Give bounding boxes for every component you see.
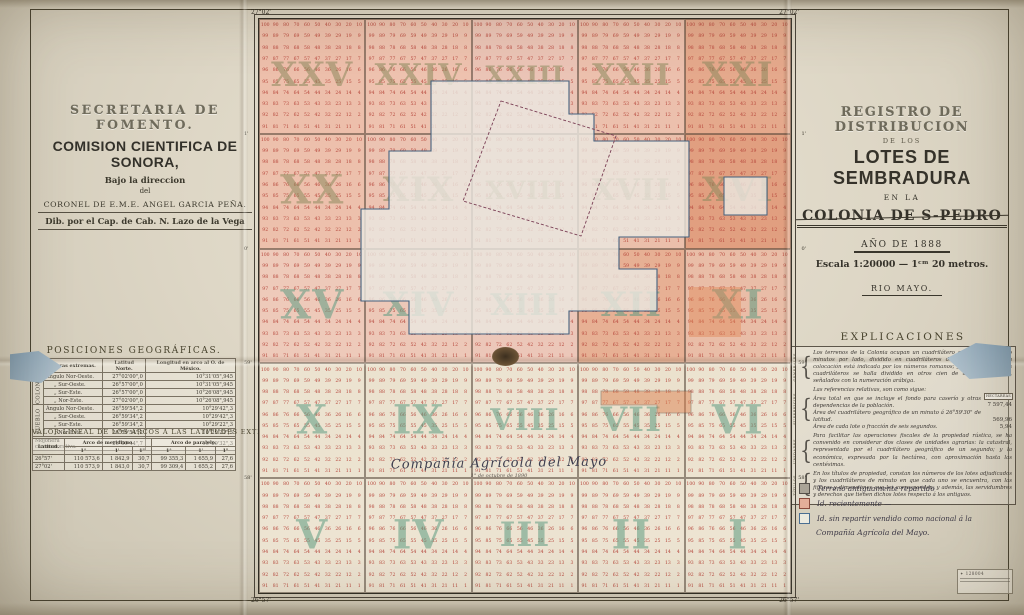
lot-number: 24 — [439, 202, 449, 213]
lot-number: 21 — [759, 466, 769, 477]
valor-sub-deg-p: 1° — [152, 447, 186, 455]
lot-number: 57 — [408, 513, 418, 524]
lot-number: 99 — [579, 376, 589, 387]
lot-number: 48 — [312, 502, 322, 513]
lot-number: 35 — [748, 76, 758, 87]
lot-number: 10 — [460, 364, 470, 375]
lot-number: 39 — [535, 31, 545, 42]
lot-number: 86 — [270, 180, 280, 191]
mojonera-name: „ Sur-Este. — [44, 389, 103, 397]
lot-number: 35 — [535, 76, 545, 87]
lot-number: 95 — [686, 421, 696, 432]
lot-number: 48 — [525, 157, 535, 168]
lot-number: 81 — [270, 466, 280, 477]
lot-number: 52 — [727, 455, 737, 466]
lot-number: 40 — [748, 20, 758, 31]
lot-number: 13 — [450, 99, 460, 110]
lot-number: 26 — [439, 524, 449, 535]
lot-number: 69 — [291, 31, 301, 42]
lot-number: 54 — [621, 432, 631, 443]
lot-number: 59 — [408, 31, 418, 42]
lot-number: 11 — [450, 122, 460, 133]
lot-number: 52 — [408, 225, 418, 236]
lot-number: 65 — [291, 536, 301, 547]
lot-number: 33 — [642, 558, 652, 569]
lot-number: 30 — [439, 20, 449, 31]
lot-number: 77 — [494, 169, 504, 180]
lot-number: 14 — [663, 202, 673, 213]
lot-number: 17 — [450, 283, 460, 294]
lot-number: 29 — [439, 490, 449, 501]
lot-number: 76 — [387, 410, 397, 421]
lot-number: 82 — [270, 340, 280, 351]
lot-number: 91 — [260, 122, 270, 133]
lot-number: 100 — [260, 479, 270, 490]
lot-number: 78 — [387, 157, 397, 168]
lot-number: 27 — [759, 283, 769, 294]
stamp-text-line — [960, 581, 1010, 583]
lot-number: 89 — [483, 146, 493, 157]
lot-number: 80 — [387, 20, 397, 31]
lot-number: 34 — [642, 432, 652, 443]
lot-number: 5 — [780, 306, 790, 317]
lot-number: 92 — [579, 569, 589, 580]
lot-number: 42 — [738, 455, 748, 466]
lot-number: 91 — [473, 351, 483, 362]
lot-number: 27 — [652, 513, 662, 524]
lot-number: 30 — [759, 479, 769, 490]
lot-number: 71 — [494, 122, 504, 133]
lot-number: 41 — [738, 351, 748, 362]
lot-number: 36 — [642, 180, 652, 191]
lot-number: 5 — [780, 76, 790, 87]
lot-number: 39 — [535, 146, 545, 157]
lot-number: 75 — [706, 76, 716, 87]
lot-number: 58 — [727, 157, 737, 168]
lot-number: 70 — [717, 364, 727, 375]
lot-number: 55 — [727, 536, 737, 547]
lot-number: 29 — [652, 146, 662, 157]
lot-number: 57 — [302, 283, 312, 294]
area-item-value: 569,96 — [984, 417, 1012, 424]
lot-number: 65 — [611, 191, 621, 202]
lot-number: 78 — [387, 502, 397, 513]
lot-number: 93 — [686, 214, 696, 225]
lot-number: 57 — [621, 513, 631, 524]
lot-number: 8 — [567, 387, 577, 398]
lot-number: 35 — [748, 306, 758, 317]
lot-number: 66 — [504, 410, 514, 421]
lot-number: 98 — [260, 387, 270, 398]
lot-number: 18 — [556, 272, 566, 283]
lot-number: 35 — [323, 306, 333, 317]
lot-number: 7 — [780, 398, 790, 409]
lot-number: 32 — [429, 569, 439, 580]
lot-number: 85 — [377, 536, 387, 547]
lot-number: 68 — [504, 272, 514, 283]
lot-number: 77 — [281, 169, 291, 180]
lot-number: 6 — [673, 524, 683, 535]
lot-number: 32 — [323, 110, 333, 121]
lot-number: 64 — [611, 88, 621, 99]
lot-number: 13 — [344, 329, 354, 340]
lot-number: 97 — [686, 54, 696, 65]
lot-number: 89 — [270, 146, 280, 157]
lot-number: 99 — [366, 376, 376, 387]
lot-number: 35 — [323, 191, 333, 202]
lot-number: 11 — [556, 122, 566, 133]
lot-number: 93 — [579, 443, 589, 454]
lot-number: 51 — [727, 122, 737, 133]
lot-number: 78 — [706, 43, 716, 54]
lot-number: 46 — [312, 65, 322, 76]
lot-number: 60 — [515, 250, 525, 261]
lot-number: 26 — [652, 65, 662, 76]
lot-number: 2 — [460, 340, 470, 351]
lot-number: 31 — [429, 122, 439, 133]
lot-number: 96 — [579, 180, 589, 191]
lot-number: 15 — [769, 421, 779, 432]
lot-number: 77 — [494, 398, 504, 409]
lot-number: 22 — [333, 340, 343, 351]
lot-number: 87 — [483, 398, 493, 409]
lot-number: 39 — [429, 376, 439, 387]
lot-number: 10 — [780, 479, 790, 490]
lot-number: 59 — [515, 146, 525, 157]
lot-number: 82 — [377, 569, 387, 580]
lot-number: 74 — [706, 432, 716, 443]
lot-number: 80 — [281, 479, 291, 490]
lot-number: 25 — [759, 536, 769, 547]
lot-number: 96 — [366, 180, 376, 191]
lot-number: 37 — [535, 398, 545, 409]
lot-number: 78 — [600, 157, 610, 168]
lot-number: 97 — [366, 169, 376, 180]
lot-number: 14 — [450, 547, 460, 558]
lot-number: 22 — [546, 110, 556, 121]
lot-number: 91 — [686, 122, 696, 133]
lot-number: 69 — [717, 376, 727, 387]
lot-number: 33 — [535, 99, 545, 110]
mojonera-name: Ángulo Nor-Oeste. — [44, 405, 103, 413]
lot-number: 82 — [270, 455, 280, 466]
lot-number: 3 — [673, 443, 683, 454]
lot-number: 50 — [312, 135, 322, 146]
lot-number: 31 — [323, 466, 333, 477]
lot-number: 3 — [354, 443, 364, 454]
lot-number: 69 — [611, 261, 621, 272]
lot-number: 81 — [696, 351, 706, 362]
lot-number: 76 — [600, 180, 610, 191]
lot-number: 51 — [408, 122, 418, 133]
lot-number: 1 — [780, 351, 790, 362]
lot-number: 19 — [769, 261, 779, 272]
lot-number: 79 — [600, 261, 610, 272]
lot-number: 91 — [366, 236, 376, 247]
lot-number: 22 — [652, 340, 662, 351]
lot-number: 66 — [398, 410, 408, 421]
lot-number: 3 — [567, 558, 577, 569]
latitude-value: 26°59'34",2 — [103, 413, 146, 421]
lot-number: 58 — [408, 502, 418, 513]
lot-number: 51 — [408, 351, 418, 362]
lot-number: 4 — [460, 88, 470, 99]
lot-number: 97 — [260, 283, 270, 294]
lot-number: 95 — [260, 536, 270, 547]
lot-number: 11 — [769, 236, 779, 247]
lot-number: 80 — [706, 479, 716, 490]
lot-number: 16 — [769, 410, 779, 421]
lot-number: 33 — [323, 214, 333, 225]
arc-value: 27,6 — [216, 463, 236, 471]
lot-number: 19 — [450, 31, 460, 42]
lot-number: 62 — [504, 110, 514, 121]
lot-number: 38 — [642, 43, 652, 54]
lot-number: 97 — [579, 398, 589, 409]
lot-number: 11 — [769, 466, 779, 477]
lot-number: 98 — [686, 157, 696, 168]
lot-number: 88 — [377, 157, 387, 168]
lot-number: 18 — [769, 43, 779, 54]
lot-number: 83 — [483, 214, 493, 225]
corner-coordinate-bottom-right: 26°57' — [779, 597, 799, 604]
lot-number: 68 — [504, 43, 514, 54]
lot-number: 81 — [270, 236, 280, 247]
lot-number: 20 — [769, 479, 779, 490]
lot-number: 25 — [652, 536, 662, 547]
lot-number: 21 — [333, 351, 343, 362]
lot-number: 63 — [398, 99, 408, 110]
lot-number: 5 — [460, 306, 470, 317]
posiciones-col-longitud: Longitud en arco al O. de México. — [145, 359, 235, 373]
register-subtitle-delos: DE LOS — [788, 137, 1016, 145]
lot-number: 82 — [377, 340, 387, 351]
paper-edge-top — [0, 0, 1024, 8]
lot-number: 24 — [652, 88, 662, 99]
lot-number: 39 — [642, 31, 652, 42]
lot-number: 38 — [748, 43, 758, 54]
lot-number: 49 — [312, 376, 322, 387]
lot-number: 1 — [460, 122, 470, 133]
lot-number: 62 — [398, 225, 408, 236]
lot-number: 21 — [333, 466, 343, 477]
lot-number: 74 — [600, 88, 610, 99]
library-stamp: ✦ 128004 — [957, 569, 1013, 594]
lot-number: 14 — [556, 88, 566, 99]
lot-number: 29 — [333, 146, 343, 157]
lot-number: 82 — [696, 340, 706, 351]
lot-number: 75 — [387, 191, 397, 202]
lot-number: 15 — [556, 536, 566, 547]
lot-number: 58 — [727, 43, 737, 54]
lot-number: 77 — [706, 169, 716, 180]
lot-number: 78 — [387, 272, 397, 283]
lot-number: 92 — [260, 455, 270, 466]
lot-number: 35 — [323, 536, 333, 547]
lot-number: 57 — [408, 283, 418, 294]
lot-number: 13 — [556, 443, 566, 454]
lot-number: 88 — [696, 43, 706, 54]
lot-number: 27 — [546, 398, 556, 409]
lot-number: 7 — [460, 169, 470, 180]
lot-number: 11 — [344, 466, 354, 477]
lot-number: 19 — [450, 490, 460, 501]
lot-number: 56 — [302, 65, 312, 76]
lot-number: 95 — [473, 191, 483, 202]
lot-number: 75 — [706, 306, 716, 317]
map-legend: Terreno antiguamente repartidoId. recien… — [799, 483, 1015, 537]
lot-number: 81 — [590, 122, 600, 133]
lot-number: 44 — [631, 547, 641, 558]
lot-number: 35 — [429, 76, 439, 87]
lot-number: 72 — [706, 340, 716, 351]
lot-number: 57 — [621, 283, 631, 294]
lot-number: 48 — [312, 387, 322, 398]
lot-number: 95 — [473, 76, 483, 87]
lot-number: 36 — [323, 65, 333, 76]
lot-number: 82 — [483, 110, 493, 121]
lot-number: 47 — [525, 398, 535, 409]
lot-number: 58 — [515, 387, 525, 398]
lot-number: 30 — [759, 20, 769, 31]
lot-number: 46 — [525, 65, 535, 76]
lot-number: 73 — [494, 329, 504, 340]
lot-number: 98 — [579, 272, 589, 283]
lot-number: 4 — [780, 88, 790, 99]
lot-number: 63 — [611, 329, 621, 340]
lot-number: 17 — [450, 54, 460, 65]
lot-number: 26 — [546, 524, 556, 535]
lot-number: 55 — [408, 76, 418, 87]
lot-number: 77 — [706, 283, 716, 294]
lot-number: 19 — [769, 31, 779, 42]
lot-number: 5 — [567, 536, 577, 547]
lot-number: 88 — [590, 43, 600, 54]
lot-number: 63 — [611, 558, 621, 569]
lot-number: 20 — [344, 250, 354, 261]
lot-number: 86 — [590, 180, 600, 191]
lot-number: 11 — [450, 351, 460, 362]
lot-number: 50 — [419, 479, 429, 490]
lot-number: 100 — [579, 479, 589, 490]
lot-number: 71 — [387, 236, 397, 247]
lot-number: 94 — [579, 432, 589, 443]
lot-number: 45 — [312, 536, 322, 547]
lot-number: 66 — [291, 295, 301, 306]
lot-number: 84 — [377, 202, 387, 213]
lot-number: 86 — [590, 295, 600, 306]
lot-number: 41 — [631, 236, 641, 247]
lot-number: 94 — [260, 432, 270, 443]
lot-number: 100 — [686, 20, 696, 31]
lot-number: 45 — [312, 421, 322, 432]
lot-number: 87 — [483, 513, 493, 524]
lot-number: 42 — [419, 569, 429, 580]
lot-number: 64 — [398, 317, 408, 328]
section-brace: { — [800, 397, 812, 423]
lot-number: 98 — [686, 502, 696, 513]
lot-number: 28 — [652, 272, 662, 283]
lot-number: 92 — [686, 340, 696, 351]
lot-number: 32 — [535, 110, 545, 121]
lot-number: 2 — [673, 569, 683, 580]
lot-number: 8 — [673, 272, 683, 283]
lot-number: 43 — [738, 214, 748, 225]
lot-number: 38 — [642, 502, 652, 513]
lot-number: 70 — [398, 250, 408, 261]
lot-number: 33 — [642, 214, 652, 225]
lot-number: 85 — [590, 306, 600, 317]
lot-number: 52 — [302, 110, 312, 121]
lot-number: 100 — [366, 250, 376, 261]
lot-number: 82 — [696, 110, 706, 121]
arc-value: 30,7 — [132, 463, 152, 471]
lot-number: 100 — [579, 364, 589, 375]
lot-number: 46 — [312, 524, 322, 535]
lot-number: 25 — [759, 191, 769, 202]
lot-number: 70 — [611, 20, 621, 31]
lot-number: 41 — [525, 122, 535, 133]
lot-number: 50 — [631, 364, 641, 375]
lot-number: 25 — [333, 536, 343, 547]
lot-number: 25 — [759, 421, 769, 432]
lot-number: 85 — [270, 306, 280, 317]
lot-number: 30 — [439, 364, 449, 375]
lot-number: 6 — [567, 410, 577, 421]
lot-number: 69 — [291, 376, 301, 387]
lot-number: 38 — [642, 157, 652, 168]
lot-number: 66 — [291, 65, 301, 76]
lot-number: 40 — [323, 135, 333, 146]
lot-number: 93 — [260, 329, 270, 340]
lot-cells: 1009080706050403020109989796959493929199… — [366, 250, 470, 363]
lot-number: 24 — [333, 202, 343, 213]
lot-number: 99 — [686, 261, 696, 272]
lot-number: 84 — [270, 547, 280, 558]
lot-number: 49 — [312, 261, 322, 272]
lot-number: 14 — [556, 317, 566, 328]
lot-number: 14 — [769, 202, 779, 213]
lot-number: 4 — [460, 432, 470, 443]
lot-number: 2 — [567, 340, 577, 351]
latitude-value: 27°02'00",0 — [103, 397, 146, 405]
lot-number: 94 — [579, 88, 589, 99]
lot-number: 80 — [494, 364, 504, 375]
area-item: Área del cuadrilátero geográfico de un m… — [813, 410, 1012, 424]
lot-number: 55 — [621, 306, 631, 317]
lot-number: 45 — [419, 306, 429, 317]
lot-number: 5 — [567, 191, 577, 202]
lot-number: 66 — [291, 410, 301, 421]
lot-number: 21 — [759, 351, 769, 362]
lot-number: 53 — [727, 214, 737, 225]
lot-number: 75 — [600, 191, 610, 202]
lot-number: 85 — [483, 191, 493, 202]
lot-number: 95 — [686, 76, 696, 87]
lot-number: 70 — [398, 20, 408, 31]
lot-number: 83 — [377, 99, 387, 110]
lot-number: 57 — [515, 513, 525, 524]
lot-number: 76 — [494, 180, 504, 191]
lot-number: 47 — [419, 283, 429, 294]
lot-number: 71 — [706, 122, 716, 133]
lot-number: 31 — [323, 351, 333, 362]
lot-number: 40 — [323, 364, 333, 375]
lot-number: 48 — [312, 272, 322, 283]
lot-number: 1 — [354, 122, 364, 133]
minute-block-XX: 1009080706050403020109989796959493929199… — [259, 134, 365, 249]
lot-number: 87 — [377, 513, 387, 524]
